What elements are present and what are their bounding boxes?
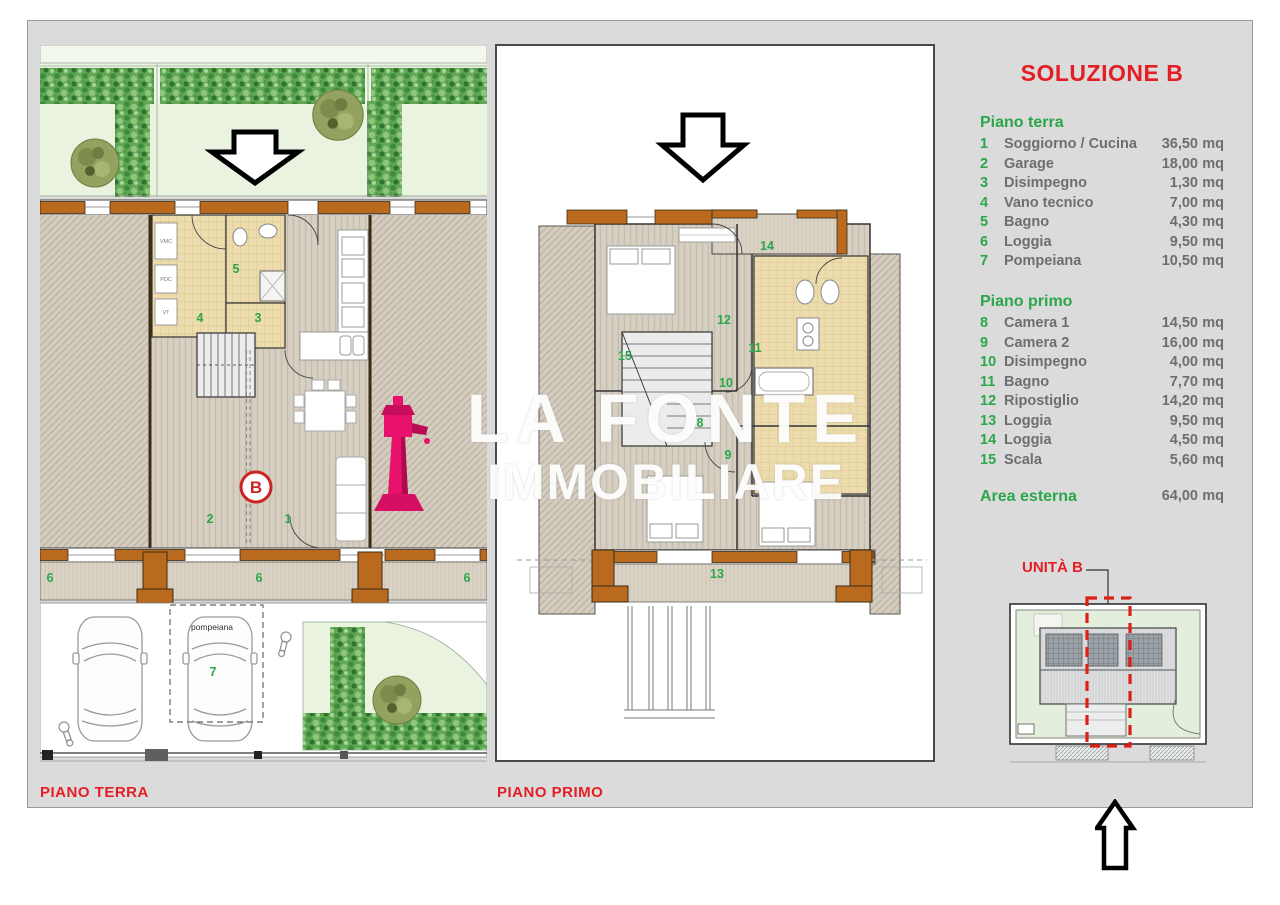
legend-value: 14,50	[1146, 315, 1198, 331]
legend-value: 16,00	[1146, 335, 1198, 351]
legend-num: 2	[980, 156, 1004, 172]
legend-value: 7,70	[1146, 374, 1198, 390]
legend-unit: mq	[1198, 175, 1224, 191]
first-floor-plan: 14121511108913	[495, 44, 935, 762]
vt-label: VT	[162, 310, 170, 316]
legend-name: Pompeiana	[1004, 253, 1146, 269]
legend-name: Camera 1	[1004, 315, 1146, 331]
legend-unit: mq	[1198, 214, 1224, 230]
legend-value: 18,00	[1146, 156, 1198, 172]
legend-num: 5	[980, 214, 1004, 230]
legend-num: 4	[980, 195, 1004, 211]
legend-num: 8	[980, 315, 1004, 331]
legend-row: 15Scala5,60mq	[980, 452, 1224, 472]
legend-row: 6Loggia9,50mq	[980, 234, 1224, 254]
legend-row: 2Garage18,00mq	[980, 156, 1224, 176]
page: VMC PDC VT	[0, 0, 1280, 905]
interior-floors: VMC PDC VT	[40, 215, 487, 548]
legend-unit: mq	[1198, 374, 1224, 390]
area-unit: mq	[1198, 488, 1224, 506]
legend-name: Ripostiglio	[1004, 393, 1146, 409]
legend-value: 4,50	[1146, 432, 1198, 448]
pergola-lines	[624, 606, 715, 718]
legend-value: 4,00	[1146, 354, 1198, 370]
legend-name: Loggia	[1004, 234, 1146, 250]
tree	[373, 676, 421, 724]
legend-unit: mq	[1198, 335, 1224, 351]
tree	[71, 139, 119, 187]
neighbour-left	[539, 226, 595, 614]
area-value: 64,00	[1146, 488, 1198, 506]
legend-row: 13Loggia9,50mq	[980, 413, 1224, 433]
legend-value: 36,50	[1146, 136, 1198, 152]
legend-num: 12	[980, 393, 1004, 409]
legend-value: 5,60	[1146, 452, 1198, 468]
sofa	[336, 457, 366, 541]
car	[73, 617, 147, 741]
legend-name: Loggia	[1004, 413, 1146, 429]
legend-unit: mq	[1198, 432, 1224, 448]
legend-row: 5Bagno4,30mq	[980, 214, 1224, 234]
legend-row: 11Bagno7,70mq	[980, 374, 1224, 394]
legend-first: Piano primo 8Camera 114,50mq9Camera 216,…	[980, 293, 1224, 471]
driveway-cars	[1010, 746, 1206, 762]
legend-first-header: Piano primo	[980, 293, 1224, 311]
legend-value: 14,20	[1146, 393, 1198, 409]
legend-name: Loggia	[1004, 432, 1146, 448]
legend-name: Soggiorno / Cucina	[1004, 136, 1146, 152]
legend-row: 12Ripostiglio14,20mq	[980, 393, 1224, 413]
legend-value: 10,50	[1146, 253, 1198, 269]
legend-name: Scala	[1004, 452, 1146, 468]
legend-unit: mq	[1198, 195, 1224, 211]
legend-name: Camera 2	[1004, 335, 1146, 351]
legend-num: 11	[980, 374, 1004, 390]
legend-name: Vano tecnico	[1004, 195, 1146, 211]
legend-name: Disimpegno	[1004, 354, 1146, 370]
legend-value: 1,30	[1146, 175, 1198, 191]
legend-num: 13	[980, 413, 1004, 429]
legend-num: 3	[980, 175, 1004, 191]
legend-num: 14	[980, 432, 1004, 448]
legend-row: 1Soggiorno / Cucina36,50mq	[980, 136, 1224, 156]
legend-value: 9,50	[1146, 413, 1198, 429]
legend-ground: Piano terra 1Soggiorno / Cucina36,50mq2G…	[980, 114, 1224, 273]
first-floor-drawing	[497, 46, 933, 760]
legend-row: 9Camera 216,00mq	[980, 335, 1224, 355]
site-minimap	[1008, 558, 1208, 770]
legend-row: 3Disimpegno1,30mq	[980, 175, 1224, 195]
legend-area-row: Area esterna 64,00 mq	[980, 488, 1224, 506]
legend-unit: mq	[1198, 393, 1224, 409]
legend-row: 7Pompeiana10,50mq	[980, 253, 1224, 273]
legend-num: 6	[980, 234, 1004, 250]
stairs	[622, 332, 712, 446]
legend-value: 4,30	[1146, 214, 1198, 230]
legend-row: 4Vano tecnico7,00mq	[980, 195, 1224, 215]
legend-num: 1	[980, 136, 1004, 152]
legend-name: Disimpegno	[1004, 175, 1146, 191]
unit-b-marker: B	[241, 472, 271, 502]
vmc-label: VMC	[160, 239, 172, 245]
legend-name: Bagno	[1004, 374, 1146, 390]
legend-num: 15	[980, 452, 1004, 468]
legend-num: 7	[980, 253, 1004, 269]
legend-unit: mq	[1198, 253, 1224, 269]
legend-unit: mq	[1198, 354, 1224, 370]
exterior-wall-top	[40, 200, 487, 215]
direction-arrow-up	[1095, 799, 1137, 873]
ground-floor-drawing: VMC PDC VT	[40, 45, 487, 781]
exterior-wall-bottom	[40, 548, 487, 562]
legend-unit: mq	[1198, 413, 1224, 429]
legend-unit: mq	[1198, 156, 1224, 172]
ground-floor-plan: VMC PDC VT	[40, 45, 487, 781]
legend-unit: mq	[1198, 452, 1224, 468]
area-label: Area esterna	[980, 488, 1146, 506]
legend-row: 8Camera 114,50mq	[980, 315, 1224, 335]
legend-value: 9,50	[1146, 234, 1198, 250]
legend-row: 10Disimpegno4,00mq	[980, 354, 1224, 374]
legend-name: Bagno	[1004, 214, 1146, 230]
legend-unit: mq	[1198, 234, 1224, 250]
legend-num: 9	[980, 335, 1004, 351]
legend-name: Garage	[1004, 156, 1146, 172]
legend-value: 7,00	[1146, 195, 1198, 211]
legend-num: 10	[980, 354, 1004, 370]
tree	[313, 90, 363, 140]
pompeiana-label: pompeiana	[191, 622, 233, 632]
parking-area: pompeiana	[40, 603, 487, 761]
first-floor-caption: PIANO PRIMO	[497, 784, 603, 801]
legend-ground-header: Piano terra	[980, 114, 1224, 132]
pdc-label: PDC	[160, 277, 172, 283]
legend-unit: mq	[1198, 315, 1224, 331]
solution-title: SOLUZIONE B	[978, 60, 1226, 87]
legend-unit: mq	[1198, 136, 1224, 152]
ground-floor-caption: PIANO TERRA	[40, 784, 149, 801]
legend-row: 14Loggia4,50mq	[980, 432, 1224, 452]
svg-text:B: B	[250, 478, 262, 497]
unit-interior	[567, 210, 870, 550]
entrance-arrow-down	[662, 115, 744, 180]
